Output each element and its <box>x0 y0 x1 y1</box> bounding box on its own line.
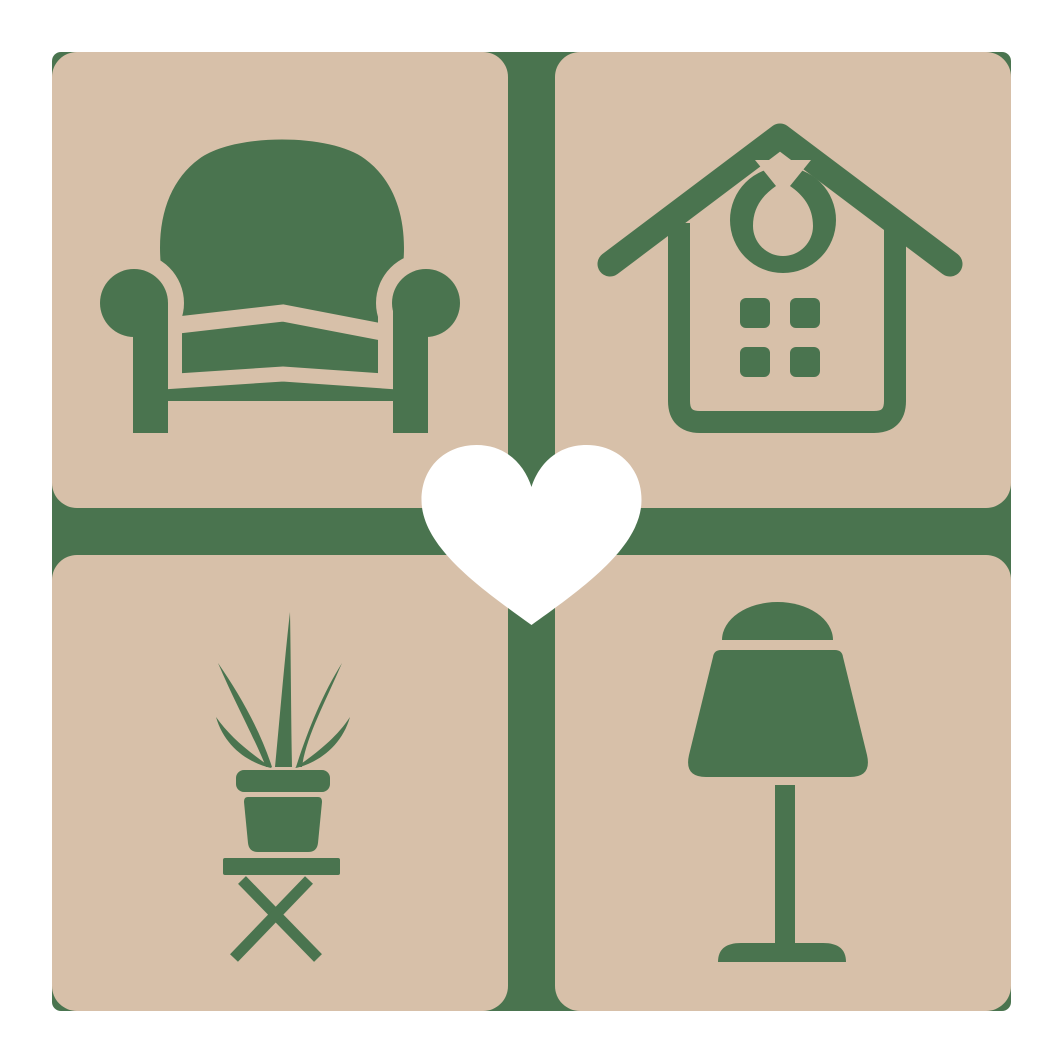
house-window-bottom-left <box>740 347 770 377</box>
tile-potted-plant <box>52 555 508 1011</box>
furniture-home-logo <box>0 0 1063 1063</box>
house-window-top-right <box>790 298 820 328</box>
plant-table-top <box>223 858 340 875</box>
tile-table-lamp <box>555 555 1011 1011</box>
lamp-base <box>718 943 846 962</box>
lamp-shade <box>688 650 868 777</box>
tile-house <box>555 52 1011 508</box>
tile-armchair <box>52 52 508 508</box>
plant-pot-rim <box>236 770 330 792</box>
plant-pot-body <box>244 797 322 852</box>
armchair-leg-left <box>133 303 168 433</box>
lamp-stem <box>775 785 795 951</box>
armchair-seam-bottom <box>162 374 398 382</box>
armchair-leg-right <box>393 303 428 433</box>
house-window-top-left <box>740 298 770 328</box>
house-window-bottom-right <box>790 347 820 377</box>
tile-house-background <box>555 52 1011 508</box>
logo-canvas <box>0 0 1063 1063</box>
